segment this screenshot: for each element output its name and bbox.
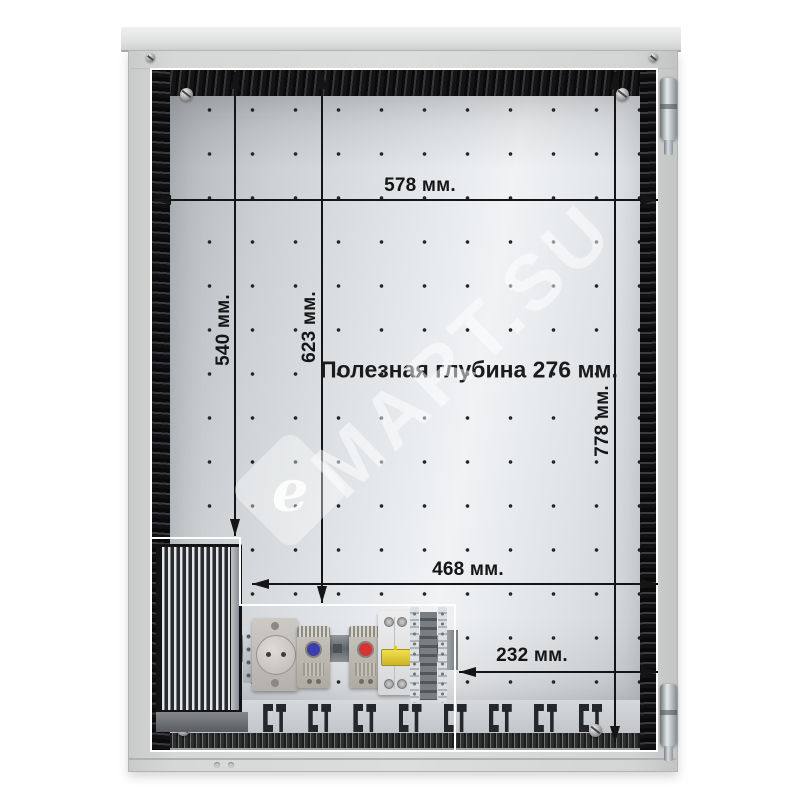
vent-slot-icon <box>366 704 376 732</box>
vent-cutout <box>399 704 422 732</box>
breaker-handle <box>381 649 411 666</box>
dim-height-left-label: 540 мм. <box>213 294 235 366</box>
vent-cutout <box>263 704 286 732</box>
dim-height-right-label: 778 мм. <box>592 385 614 457</box>
vent-slot-icon <box>489 704 499 732</box>
terminal-block-stack <box>420 612 437 700</box>
vent-slot-icon <box>276 704 286 732</box>
rain-canopy <box>121 27 681 52</box>
vent-slot-icon <box>353 704 363 732</box>
vent-slot-icon <box>399 704 409 732</box>
terminal-strip-left <box>410 607 419 703</box>
thermostat-ridges <box>297 626 330 637</box>
vent-cutout <box>534 704 557 732</box>
dim-width-center-label: 468 мм. <box>432 559 504 581</box>
vent-slot-icon <box>547 704 557 732</box>
cable-brush-strip <box>170 733 640 751</box>
vent-slot-icon <box>444 704 454 732</box>
vent-slot-icon <box>534 704 544 732</box>
dim-width-top-label: 578 мм. <box>384 175 456 197</box>
socket-screw <box>271 679 279 687</box>
bottom-seam <box>128 758 676 760</box>
thermostat-blue-dial <box>297 626 330 688</box>
vent-slot-icon <box>579 704 589 732</box>
thermostat-vents <box>355 663 376 676</box>
breaker-terminal-screws <box>378 679 412 689</box>
insulation-top <box>150 68 658 96</box>
vent-cutouts <box>218 704 602 732</box>
vent-cutout <box>444 704 467 732</box>
plate-screw-top-left <box>180 88 193 101</box>
insulation-right <box>640 68 658 752</box>
heatsink-fins-icon <box>162 547 230 710</box>
vent-slot-icon <box>263 704 273 732</box>
socket-face <box>256 635 296 675</box>
vent-cutout <box>308 704 331 732</box>
hinge-bottom <box>660 684 677 746</box>
vent-slot-icon <box>412 704 422 732</box>
breaker-terminal-screws <box>378 617 412 627</box>
din-socket-outlet <box>252 618 298 691</box>
vent-slot-icon <box>502 704 512 732</box>
socket-hole-icon <box>281 652 286 657</box>
dim-height-center-label: 623 мм. <box>299 291 321 363</box>
hinge-top <box>660 78 677 140</box>
vent-cutout <box>353 704 376 732</box>
useful-depth-note: Полезная глубина 276 мм. <box>320 357 618 384</box>
socket-screw <box>271 622 279 630</box>
terminal-block-small <box>447 630 458 670</box>
drain-hole <box>228 762 234 768</box>
vent-slot-icon <box>457 704 467 732</box>
circuit-breaker-2p <box>378 611 412 695</box>
vent-slot-icon <box>321 704 331 732</box>
socket-hole-icon <box>266 652 271 657</box>
plate-screw-top-right <box>616 88 629 101</box>
thermostat-vents <box>303 663 324 676</box>
terminal-strip-right <box>438 607 447 703</box>
vent-cutout <box>489 704 512 732</box>
frame-screw-left <box>146 53 155 62</box>
vent-slot-icon <box>308 704 318 732</box>
dim-width-bottom-label: 232 мм. <box>496 645 568 667</box>
frame-screw-right <box>649 53 658 62</box>
drain-hole <box>214 762 220 768</box>
enclosure-product-image: 578 мм. 540 мм. 623 мм. 778 мм. 468 мм. … <box>0 0 800 800</box>
frame-top-band <box>128 50 676 69</box>
heatsink-base <box>156 712 248 732</box>
thermostat-dial-red-icon <box>357 641 374 658</box>
thermostat-dial-blue-icon <box>305 641 322 658</box>
heatsink-heater <box>156 544 242 714</box>
thermostat-terminals <box>297 679 330 684</box>
plate-screw-bottom-right <box>589 724 602 737</box>
